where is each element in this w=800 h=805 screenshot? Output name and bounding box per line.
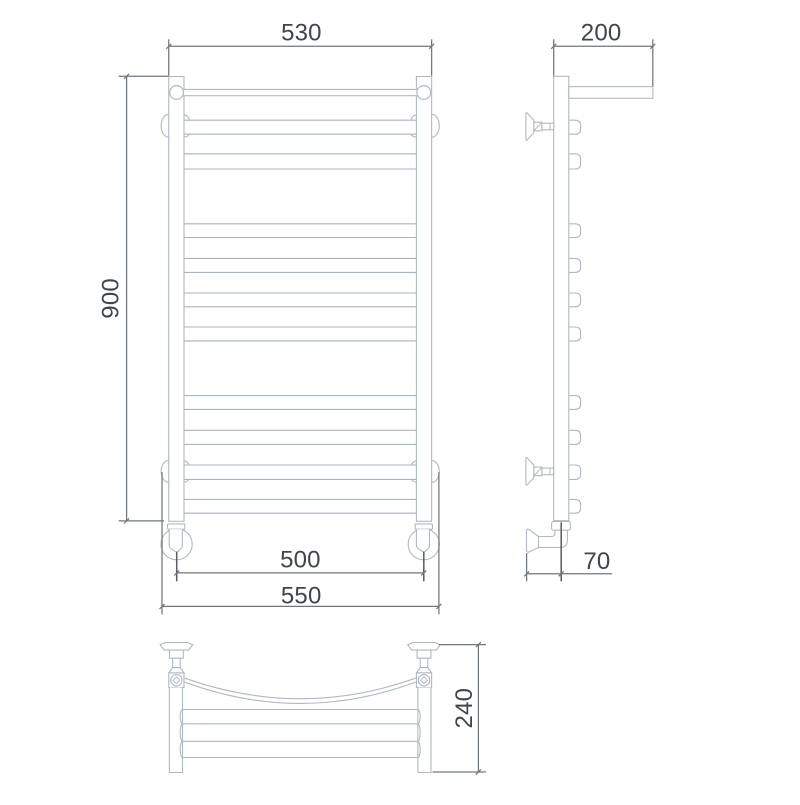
svg-text:500: 500 — [280, 546, 321, 573]
svg-text:200: 200 — [581, 19, 622, 46]
svg-text:900: 900 — [98, 278, 125, 319]
svg-text:530: 530 — [281, 20, 322, 47]
svg-text:240: 240 — [451, 688, 478, 729]
svg-text:70: 70 — [583, 548, 610, 575]
svg-text:550: 550 — [281, 583, 322, 610]
